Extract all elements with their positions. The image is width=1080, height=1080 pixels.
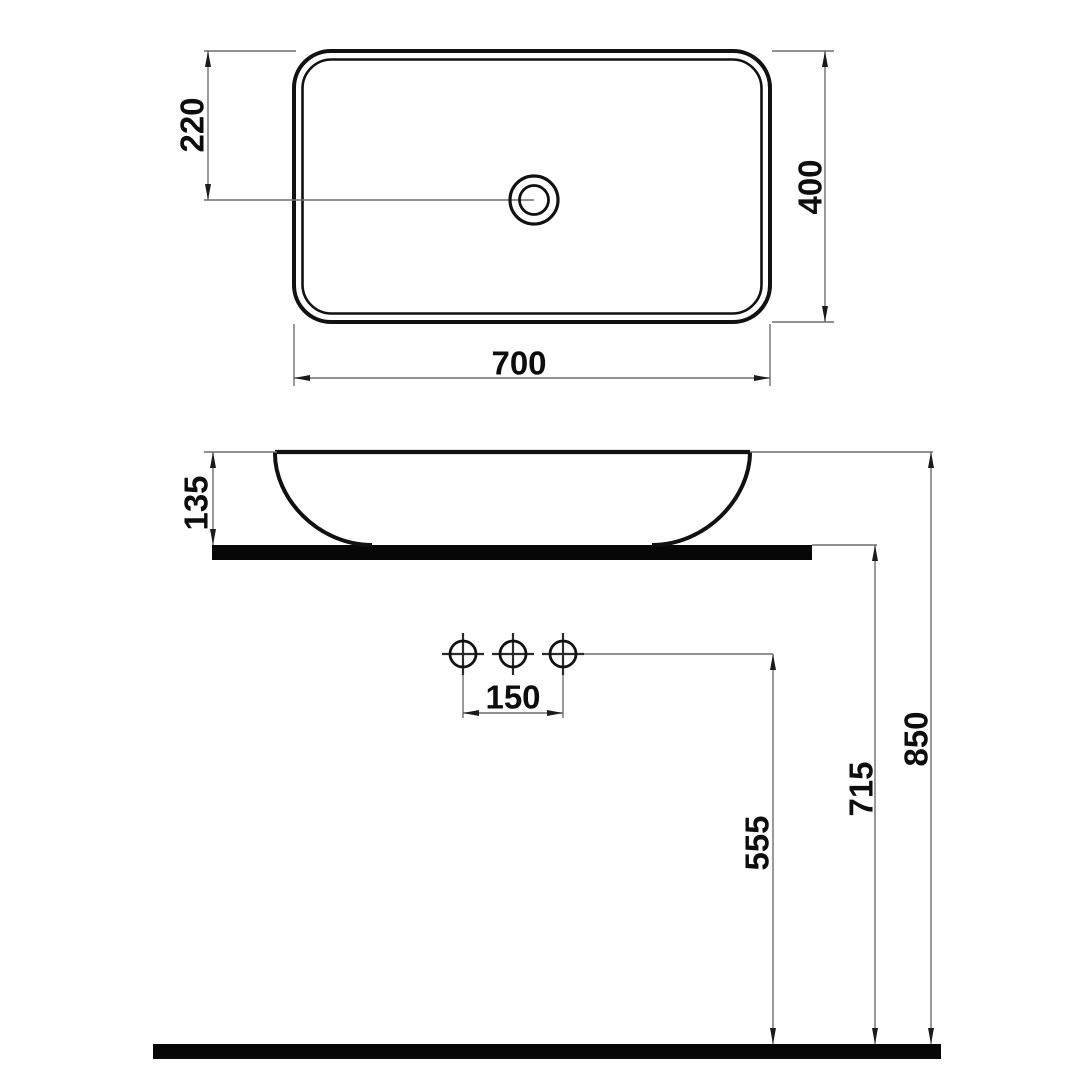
canvas-background: [0, 0, 1080, 1080]
dim-label-400: 400: [792, 159, 829, 214]
floor-line: [153, 1044, 941, 1059]
dim-label-715: 715: [843, 761, 880, 816]
dim-label-700: 700: [491, 345, 546, 382]
dim-label-220: 220: [174, 97, 211, 152]
countertop-slab: [212, 545, 812, 560]
drawing-page: 220 400 700: [0, 0, 1080, 1080]
dim-label-850: 850: [898, 711, 935, 766]
dim-label-555: 555: [739, 815, 776, 870]
dim-label-150: 150: [485, 679, 540, 716]
technical-drawing-canvas: 220 400 700: [0, 0, 1080, 1080]
dim-label-135: 135: [178, 475, 215, 530]
